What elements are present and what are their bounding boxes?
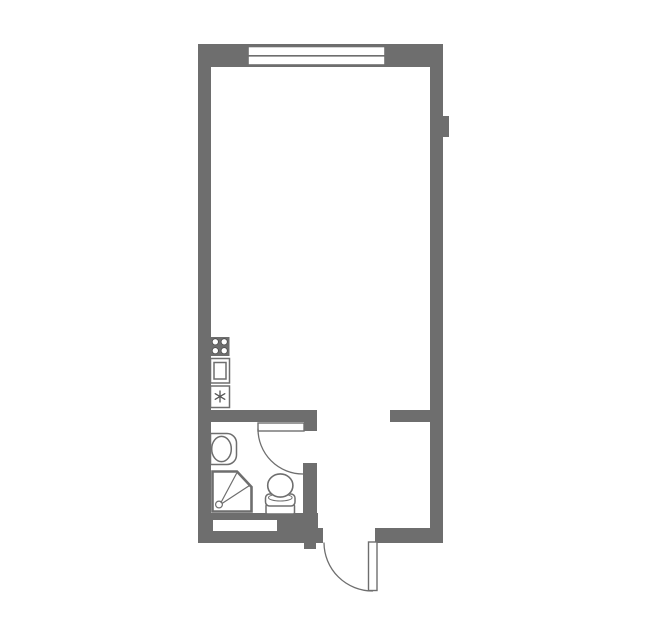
floor-plan-svg [0, 0, 659, 633]
bath-door-swing-arc [258, 429, 303, 474]
entry-door-tab [304, 543, 316, 549]
stove-burner [221, 348, 227, 354]
right-wall-ledge [443, 116, 449, 137]
bath-bottom-step [317, 528, 323, 543]
wall-niche [213, 520, 277, 531]
interior-wall-right [390, 410, 443, 422]
stove-burner [212, 348, 218, 354]
right-wall [430, 44, 443, 543]
entry-right-wall [375, 528, 443, 543]
bath-door-jamb [304, 410, 317, 431]
bath-hall-divider-wall [303, 463, 317, 515]
entry-door-leaf [369, 542, 378, 591]
entry-door-swing-arc [324, 543, 373, 591]
left-wall [198, 44, 211, 543]
stove-burner [221, 339, 227, 345]
stove-burner [212, 339, 218, 345]
floor-plan-page [0, 0, 659, 633]
interior-wall-left [198, 410, 315, 422]
bath-door-leaf [258, 423, 304, 431]
toilet-bowl [268, 474, 293, 497]
bath-sink-basin [212, 436, 232, 461]
